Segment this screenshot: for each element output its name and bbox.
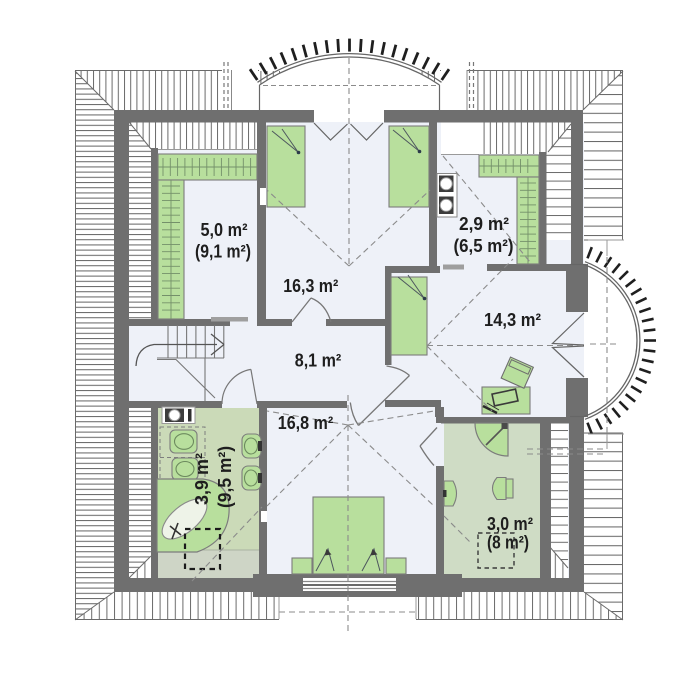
svg-text:16,3 m²: 16,3 m² xyxy=(283,276,338,296)
svg-text:(8 m²): (8 m²) xyxy=(487,533,529,553)
svg-text:3,9 m²: 3,9 m² xyxy=(192,453,212,505)
svg-text:16,8 m²: 16,8 m² xyxy=(278,413,334,433)
svg-text:8,1 m²: 8,1 m² xyxy=(295,351,342,371)
svg-text:3,0 m²: 3,0 m² xyxy=(487,514,533,534)
svg-text:(9,5 m²): (9,5 m²) xyxy=(215,446,235,508)
svg-text:(9,1 m²): (9,1 m²) xyxy=(195,242,251,262)
svg-text:2,9 m²: 2,9 m² xyxy=(459,214,509,234)
svg-text:(6,5 m²): (6,5 m²) xyxy=(454,236,514,256)
svg-text:5,0 m²: 5,0 m² xyxy=(201,220,248,240)
svg-text:14,3 m²: 14,3 m² xyxy=(484,310,541,330)
